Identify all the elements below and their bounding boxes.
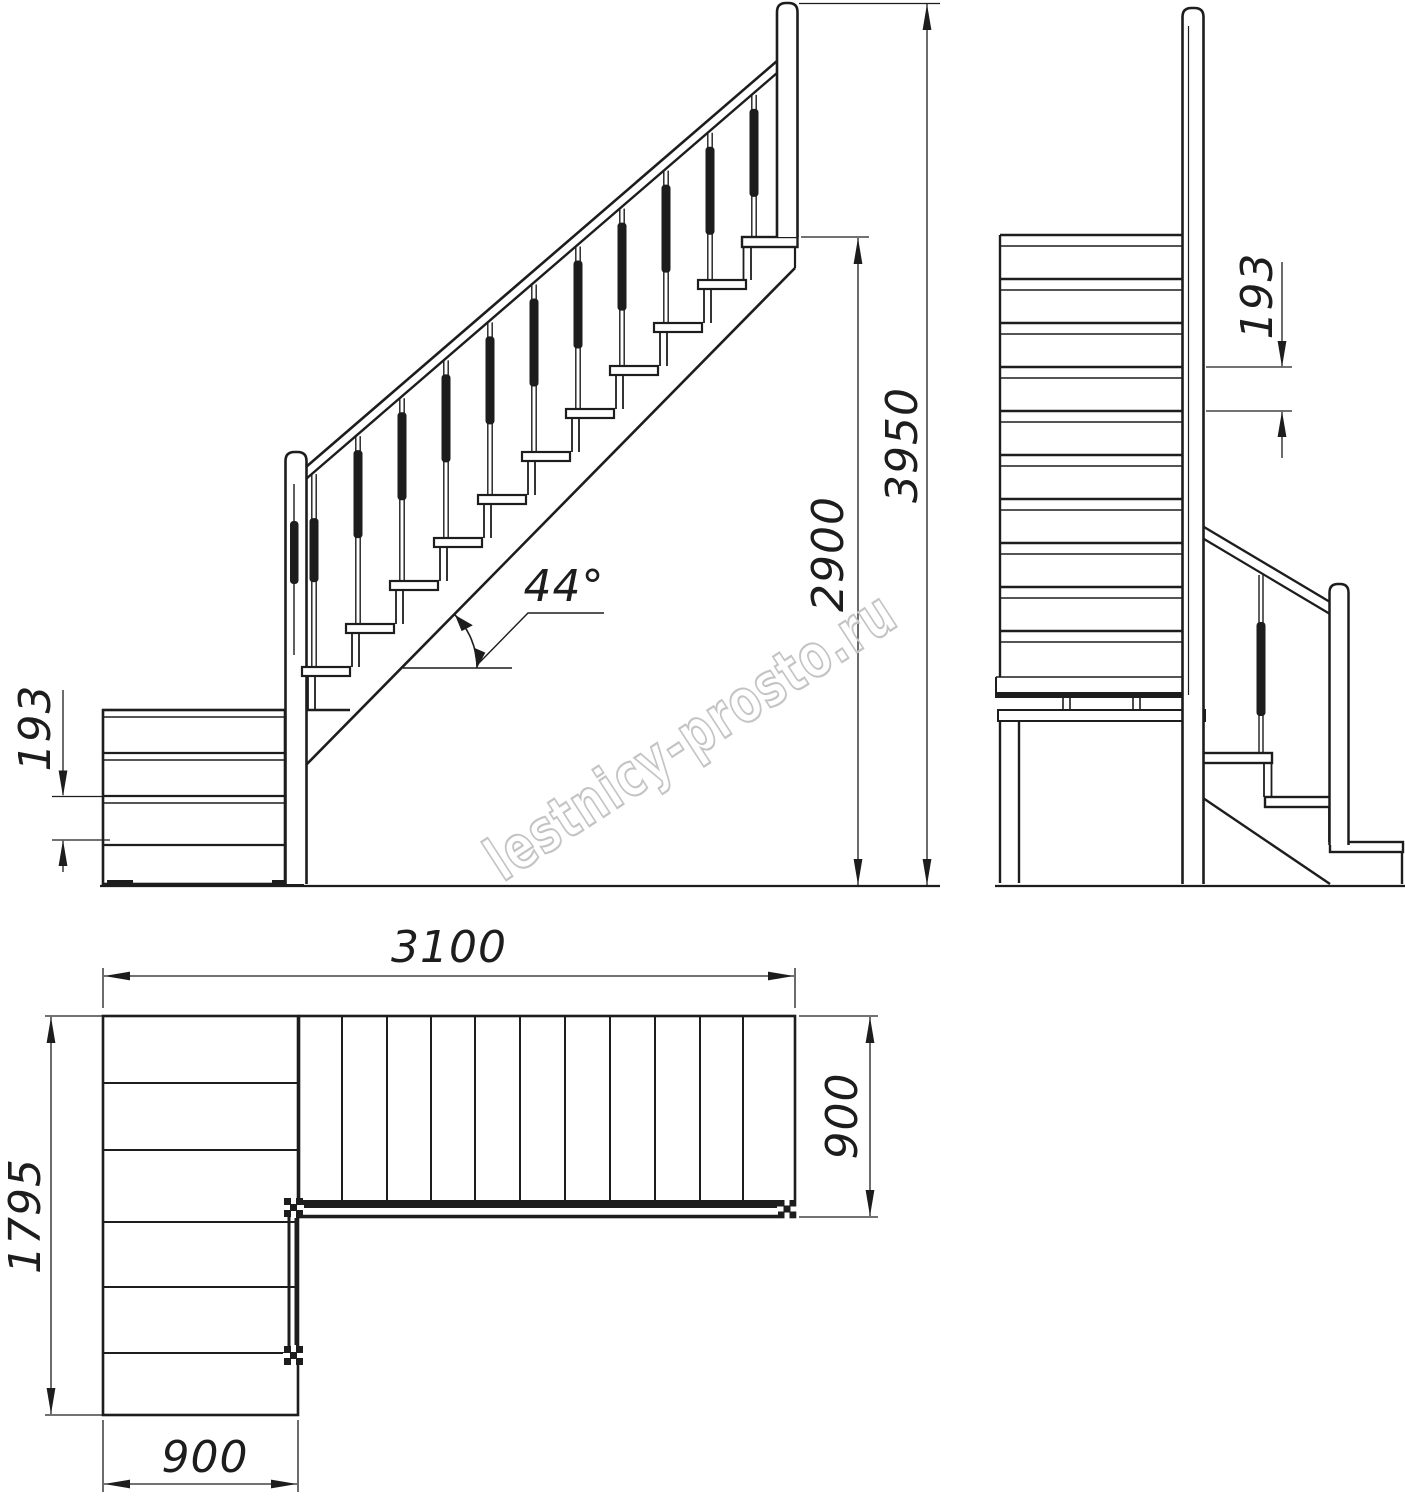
- dim-arrowhead: [1278, 411, 1287, 437]
- baluster-core: [290, 521, 299, 584]
- upper-newel-post: [1183, 8, 1204, 884]
- upper-newel-post: [777, 3, 798, 237]
- dim-arrowhead: [47, 1017, 56, 1043]
- dim-arrowhead: [854, 238, 863, 264]
- tread: [1203, 753, 1272, 763]
- post-symbol-center: [290, 1352, 297, 1359]
- tread: [522, 452, 570, 461]
- drawing-sheet: lestnicy-prosto.ru 193 44° 2900 3950 193…: [0, 0, 1405, 1500]
- tread: [566, 409, 614, 418]
- dim-arrowhead: [923, 859, 932, 885]
- support-beam: [998, 710, 1205, 721]
- tread: [346, 624, 394, 633]
- baluster-core: [662, 185, 671, 273]
- handrail-top: [306, 61, 777, 467]
- lower-newel-post: [1330, 584, 1349, 845]
- dim-plan-total-width-label: 1795: [0, 1158, 51, 1274]
- baluster-core: [706, 147, 715, 235]
- dim-total-height-label: 3950: [877, 387, 928, 503]
- tread: [478, 495, 526, 504]
- dim-arrowhead: [866, 1190, 875, 1216]
- stringer-edge: [1203, 798, 1330, 884]
- tread: [698, 280, 746, 289]
- landing-tread: [742, 237, 798, 247]
- platform-face-edge: [996, 692, 1183, 698]
- handrail-top: [1204, 527, 1330, 602]
- plan-view: [103, 1016, 797, 1415]
- dim-arrowhead: [59, 771, 68, 797]
- tread: [610, 366, 658, 375]
- baluster-core: [530, 298, 539, 386]
- baluster-core: [1257, 622, 1266, 716]
- handrail-bottom: [1204, 539, 1330, 614]
- dim-arrowhead: [866, 1017, 875, 1043]
- dim-floor-to-landing-label: 2900: [803, 496, 854, 612]
- plan-main-flight: [299, 1016, 795, 1217]
- dim-arrowhead: [1278, 341, 1287, 367]
- dim-arrowhead: [47, 1388, 56, 1414]
- dim-arrowhead: [104, 1480, 130, 1489]
- dim-arrowhead: [104, 972, 130, 981]
- dim-riser-height-right-label: 193: [1232, 253, 1283, 340]
- dim-arrowhead: [923, 4, 932, 30]
- foot-pad: [107, 880, 133, 887]
- side-elevation-view: [100, 3, 940, 887]
- post-symbol-center: [784, 1206, 791, 1213]
- dim-plan-lower-flight-width-label: 900: [162, 1432, 249, 1483]
- baluster-core: [354, 450, 363, 538]
- front-elevation-view: [995, 8, 1405, 886]
- baluster-core: [310, 518, 319, 582]
- dim-plan-main-flight-width-label: 900: [817, 1073, 868, 1160]
- dim-arrowhead: [59, 840, 68, 866]
- post-symbol-center: [290, 1204, 297, 1211]
- watermark-text: lestnicy-prosto.ru: [473, 578, 909, 895]
- tread: [390, 581, 438, 590]
- tread: [1265, 797, 1337, 807]
- staircase-technical-drawing: lestnicy-prosto.ru 193 44° 2900 3950 193…: [0, 0, 1405, 1500]
- baluster-core: [442, 374, 451, 462]
- dim-arrowhead: [854, 859, 863, 885]
- dim-arrowhead: [768, 972, 794, 981]
- handrail-bottom: [306, 73, 777, 479]
- baluster-core: [750, 109, 759, 197]
- baluster-core: [398, 412, 407, 500]
- baluster-core: [618, 223, 627, 311]
- plan-lower-flight: [103, 1016, 298, 1415]
- tread: [434, 538, 482, 547]
- dim-plan-total-length-label: 3100: [391, 922, 507, 973]
- tread: [654, 323, 702, 332]
- dim-slope-angle-label: 44°: [524, 561, 605, 612]
- angle-leader-line: [479, 613, 604, 663]
- dim-riser-height-left-label: 193: [10, 685, 61, 772]
- tread: [302, 667, 350, 676]
- baluster-core: [486, 336, 495, 424]
- baluster-core: [574, 261, 583, 349]
- plan-handrail-bar: [303, 1200, 780, 1208]
- dim-arrowhead: [271, 1480, 297, 1489]
